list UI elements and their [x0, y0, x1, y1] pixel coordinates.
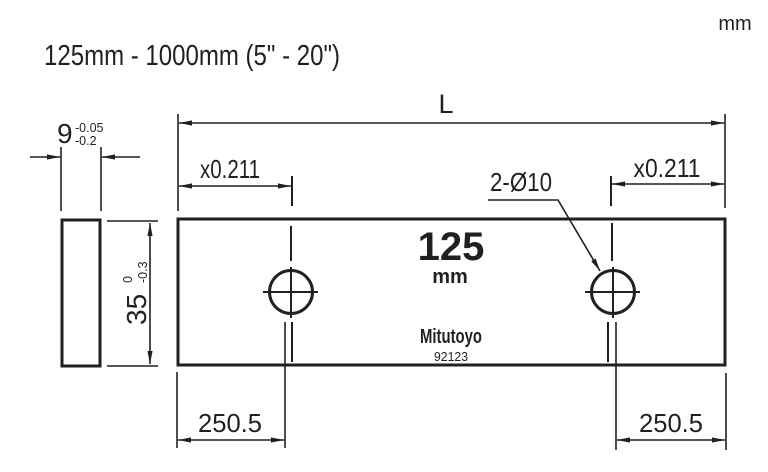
drawing-page: mm 125mm - 1000mm (5" - 20") 9 -0.05 -0.… [0, 0, 768, 472]
offset-dimension-left: x0.211 [179, 154, 292, 206]
thickness-dimension: 9 -0.05 -0.2 [30, 118, 140, 211]
unit-label: mm [718, 13, 751, 35]
thickness-tol-lower: -0.2 [75, 134, 97, 148]
thickness-tol-upper: -0.05 [75, 121, 104, 135]
brand-logo: Mitutoyo [420, 326, 482, 348]
block-unit: mm [432, 266, 468, 288]
height-tol-upper: 0 [121, 276, 135, 283]
height-value: 35 [121, 294, 152, 325]
offset-left-label: x0.211 [200, 154, 260, 184]
length-dimension: L [178, 89, 725, 211]
gauge-block-technical-drawing: mm 125mm - 1000mm (5" - 20") 9 -0.05 -0.… [0, 0, 768, 472]
hole-dist-right-label: 250.5 [639, 408, 703, 438]
height-dimension: 35 0 -0.3 [107, 221, 158, 366]
thickness-value: 9 [57, 118, 73, 149]
length-label: L [438, 89, 453, 119]
height-tol-lower: -0.3 [136, 261, 150, 283]
hole-dist-left-label: 250.5 [198, 408, 262, 438]
model-code: 92123 [434, 349, 468, 364]
block-size: 125 [418, 225, 485, 269]
side-view-outline [62, 220, 100, 366]
offset-dimension-right: x0.211 [611, 153, 724, 206]
offset-right-label: x0.211 [634, 153, 701, 183]
range-title: 125mm - 1000mm (5" - 20") [44, 40, 340, 72]
hole-callout-label: 2-Ø10 [490, 167, 552, 197]
side-view [62, 220, 100, 366]
